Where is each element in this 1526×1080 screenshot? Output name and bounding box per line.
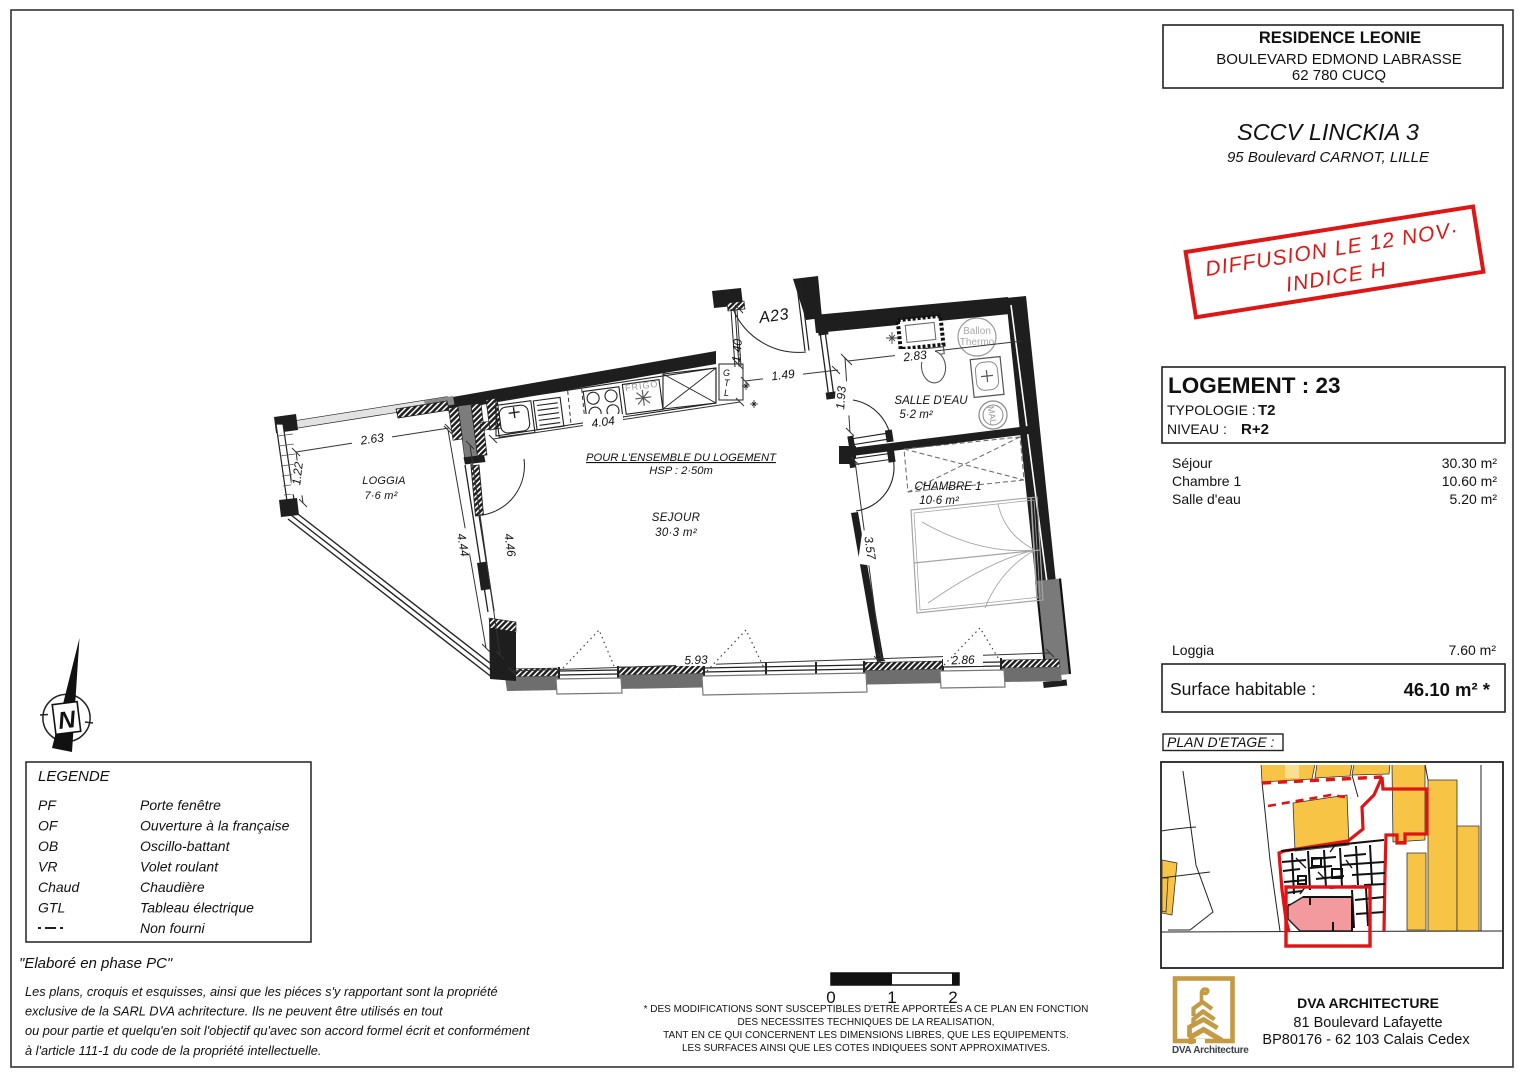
svg-text:Salle d'eau: Salle d'eau	[1172, 491, 1241, 507]
svg-text:Non fourni: Non fourni	[140, 920, 205, 936]
svg-text:95 Boulevard CARNOT, LILLE: 95 Boulevard CARNOT, LILLE	[1227, 149, 1430, 166]
svg-text:PLAN D'ETAGE :: PLAN D'ETAGE :	[1167, 734, 1275, 750]
svg-text:Ballon: Ballon	[963, 326, 991, 337]
svg-text:62 780 CUCQ: 62 780 CUCQ	[1292, 67, 1386, 84]
svg-text:1.40: 1.40	[729, 338, 745, 363]
svg-text:1.22: 1.22	[289, 461, 306, 486]
svg-text:SALLE D'EAU: SALLE D'EAU	[894, 395, 968, 407]
svg-text:81 Boulevard Lafayette: 81 Boulevard Lafayette	[1293, 1015, 1442, 1031]
svg-text:10.60 m²: 10.60 m²	[1442, 473, 1498, 489]
svg-text:Tableau électrique: Tableau électrique	[140, 900, 254, 916]
svg-text:SCCV LINCKIA 3: SCCV LINCKIA 3	[1237, 119, 1419, 145]
svg-text:10·6 m²: 10·6 m²	[919, 495, 960, 507]
svg-text:LEGENDE: LEGENDE	[38, 768, 111, 785]
svg-text:Ouverture à la française: Ouverture à la française	[140, 818, 290, 834]
svg-text:VR: VR	[38, 859, 57, 875]
svg-text:Loggia: Loggia	[1172, 642, 1214, 658]
svg-text:2.83: 2.83	[902, 348, 928, 365]
svg-text:Séjour: Séjour	[1172, 455, 1213, 471]
svg-text:POUR L'ENSEMBLE DU LOGEMENT: POUR L'ENSEMBLE DU LOGEMENT	[586, 452, 777, 464]
svg-text:1.49: 1.49	[771, 367, 796, 384]
svg-text:* DES MODIFICATIONS SONT SUSCE: * DES MODIFICATIONS SONT SUSCEPTIBLES D'…	[644, 1004, 1089, 1015]
svg-text:GTL: GTL	[38, 900, 65, 916]
svg-text:Chambre 1: Chambre 1	[1172, 473, 1241, 489]
svg-text:5.20 m²: 5.20 m²	[1450, 491, 1498, 507]
svg-text:Chaud: Chaud	[38, 879, 80, 895]
svg-text:R+2: R+2	[1241, 421, 1269, 438]
svg-text:HSP : 2·50m: HSP : 2·50m	[649, 465, 713, 477]
svg-text:TANT EN CE QUI CONCERNENT LES: TANT EN CE QUI CONCERNENT LES DIMENSIONS…	[663, 1030, 1069, 1041]
svg-text:Oscillo-battant: Oscillo-battant	[140, 838, 231, 854]
svg-text:LOGEMENT : 23: LOGEMENT : 23	[1168, 373, 1341, 398]
svg-text:L: L	[724, 388, 729, 398]
svg-text:46.10 m² *: 46.10 m² *	[1404, 679, 1491, 700]
svg-text:à l'article 111-1 du code de l: à l'article 111-1 du code de la propriét…	[25, 1043, 321, 1058]
svg-text:1.93: 1.93	[833, 385, 849, 410]
svg-text:7·6 m²: 7·6 m²	[365, 490, 398, 502]
svg-text:5·2 m²: 5·2 m²	[899, 409, 933, 421]
svg-text:RESIDENCE LEONIE: RESIDENCE LEONIE	[1259, 29, 1421, 47]
svg-text:LOGGIA: LOGGIA	[362, 475, 405, 487]
svg-text:DVA ARCHITECTURE: DVA ARCHITECTURE	[1297, 995, 1439, 1011]
svg-text:30·3 m²: 30·3 m²	[655, 527, 698, 539]
svg-text:Les plans, croquis et esquisse: Les plans, croquis et esquisses, ainsi q…	[25, 984, 498, 999]
svg-text:Porte fenêtre: Porte fenêtre	[140, 797, 221, 813]
svg-text:30.30 m²: 30.30 m²	[1442, 455, 1498, 471]
svg-text:PF: PF	[38, 797, 57, 813]
svg-text:SEJOUR: SEJOUR	[652, 512, 700, 524]
svg-text:T2: T2	[1258, 402, 1276, 419]
svg-text:NIVEAU :: NIVEAU :	[1167, 421, 1227, 437]
svg-text:BOULEVARD EDMOND LABRASSE: BOULEVARD EDMOND LABRASSE	[1216, 51, 1462, 68]
svg-text:LES SURFACES AINSI QUE LES COT: LES SURFACES AINSI QUE LES COTES INDIQUE…	[682, 1043, 1050, 1054]
svg-text:DVA Architecture: DVA Architecture	[1172, 1045, 1249, 1056]
svg-text:Chaudière: Chaudière	[140, 879, 205, 895]
svg-text:DES NECESSITES TECHNIQUES DE L: DES NECESSITES TECHNIQUES DE LA REALISAT…	[738, 1017, 995, 1028]
svg-text:5.93: 5.93	[684, 653, 708, 668]
svg-text:Volet roulant: Volet roulant	[140, 859, 219, 875]
svg-text:Surface habitable :: Surface habitable :	[1170, 679, 1316, 699]
svg-text:BP80176 - 62 103 Calais Cedex: BP80176 - 62 103 Calais Cedex	[1262, 1032, 1470, 1048]
svg-text:exclusive de la SARL DVA achri: exclusive de la SARL DVA achritecture. I…	[25, 1004, 443, 1019]
svg-text:G: G	[723, 368, 730, 378]
svg-text:2.86: 2.86	[950, 653, 975, 668]
svg-text:ou pour partie et quelqu'en so: ou pour partie et quelqu'en soit l'objec…	[25, 1023, 530, 1038]
svg-text:OB: OB	[38, 838, 58, 854]
svg-text:TYPOLOGIE :: TYPOLOGIE :	[1167, 402, 1256, 418]
svg-text:"Elaboré en phase PC": "Elaboré en phase PC"	[19, 955, 173, 972]
svg-text:CHAMBRE 1: CHAMBRE 1	[914, 481, 981, 493]
svg-text:7.60 m²: 7.60 m²	[1449, 642, 1497, 658]
svg-text:OF: OF	[38, 818, 59, 834]
